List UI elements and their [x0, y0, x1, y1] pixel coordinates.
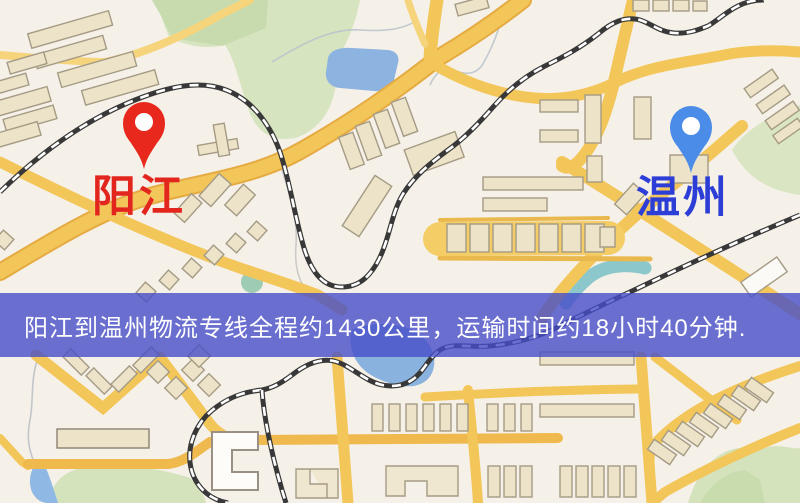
banner-text: 阳江到温州物流专线全程约1430公里，运输时间约18小时40分钟.: [24, 308, 746, 343]
destination-pin-hole: [682, 117, 700, 135]
destination-city-label: 温州: [636, 176, 730, 220]
origin-pin-shape: [123, 102, 165, 169]
map-page: { "map": { "origin": { "name": "阳江", "la…: [0, 0, 800, 503]
destination-pin-icon[interactable]: [667, 103, 715, 177]
map-canvas[interactable]: [0, 0, 800, 503]
origin-pin-hole: [135, 113, 153, 131]
info-banner: 阳江到温州物流专线全程约1430公里，运输时间约18小时40分钟.: [0, 293, 800, 357]
origin-pin-icon[interactable]: [120, 99, 168, 173]
origin-city-label: 阳江: [92, 175, 186, 219]
destination-pin-shape: [670, 106, 712, 173]
